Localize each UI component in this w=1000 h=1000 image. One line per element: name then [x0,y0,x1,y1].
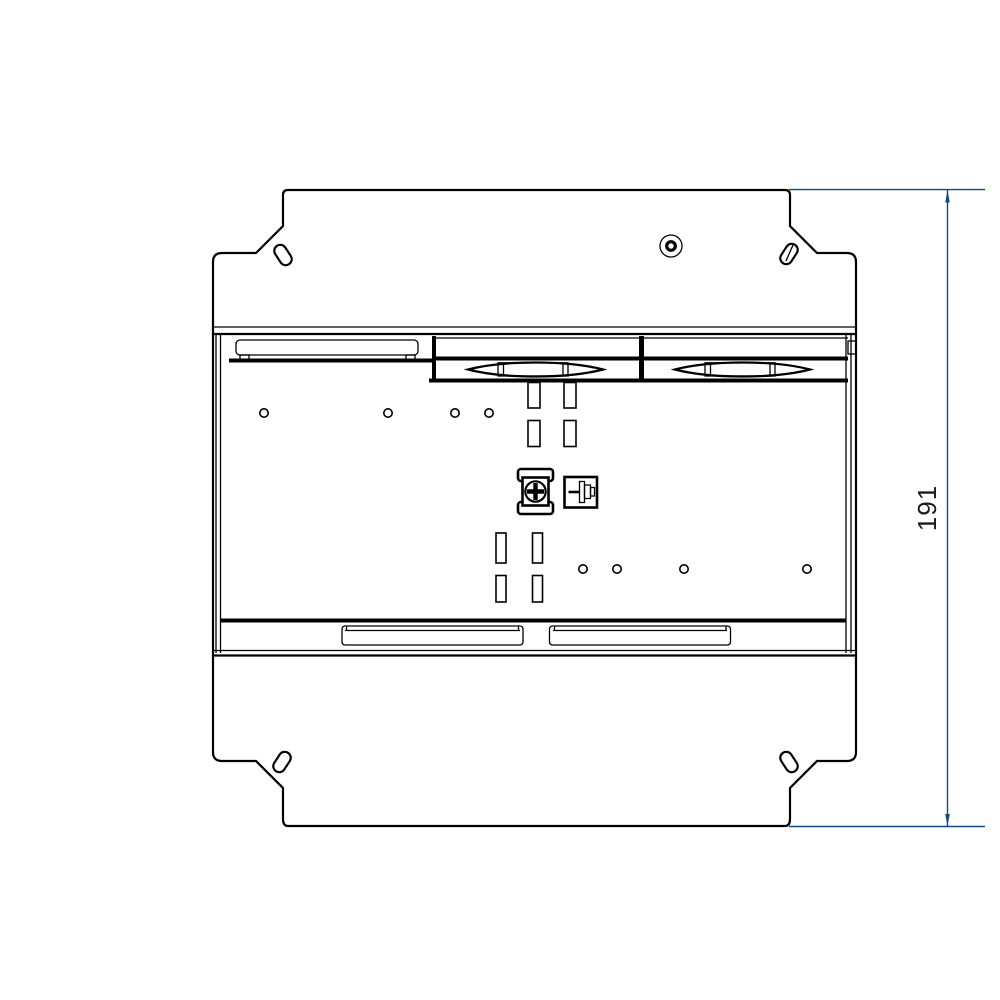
socket-module-right [675,363,810,377]
plate-outline [213,190,856,826]
dimension-arrow-down [945,814,950,826]
drawing-canvas: 191 [0,0,1000,1000]
socket-module-center [468,363,603,377]
dimension-arrow-up [945,191,950,203]
mounting-plate [213,190,856,826]
lens-opening-right [675,363,810,377]
lens-opening-center [468,363,603,377]
cad-drawing: 191 [0,0,1000,1000]
dimension-label: 191 [912,485,942,531]
